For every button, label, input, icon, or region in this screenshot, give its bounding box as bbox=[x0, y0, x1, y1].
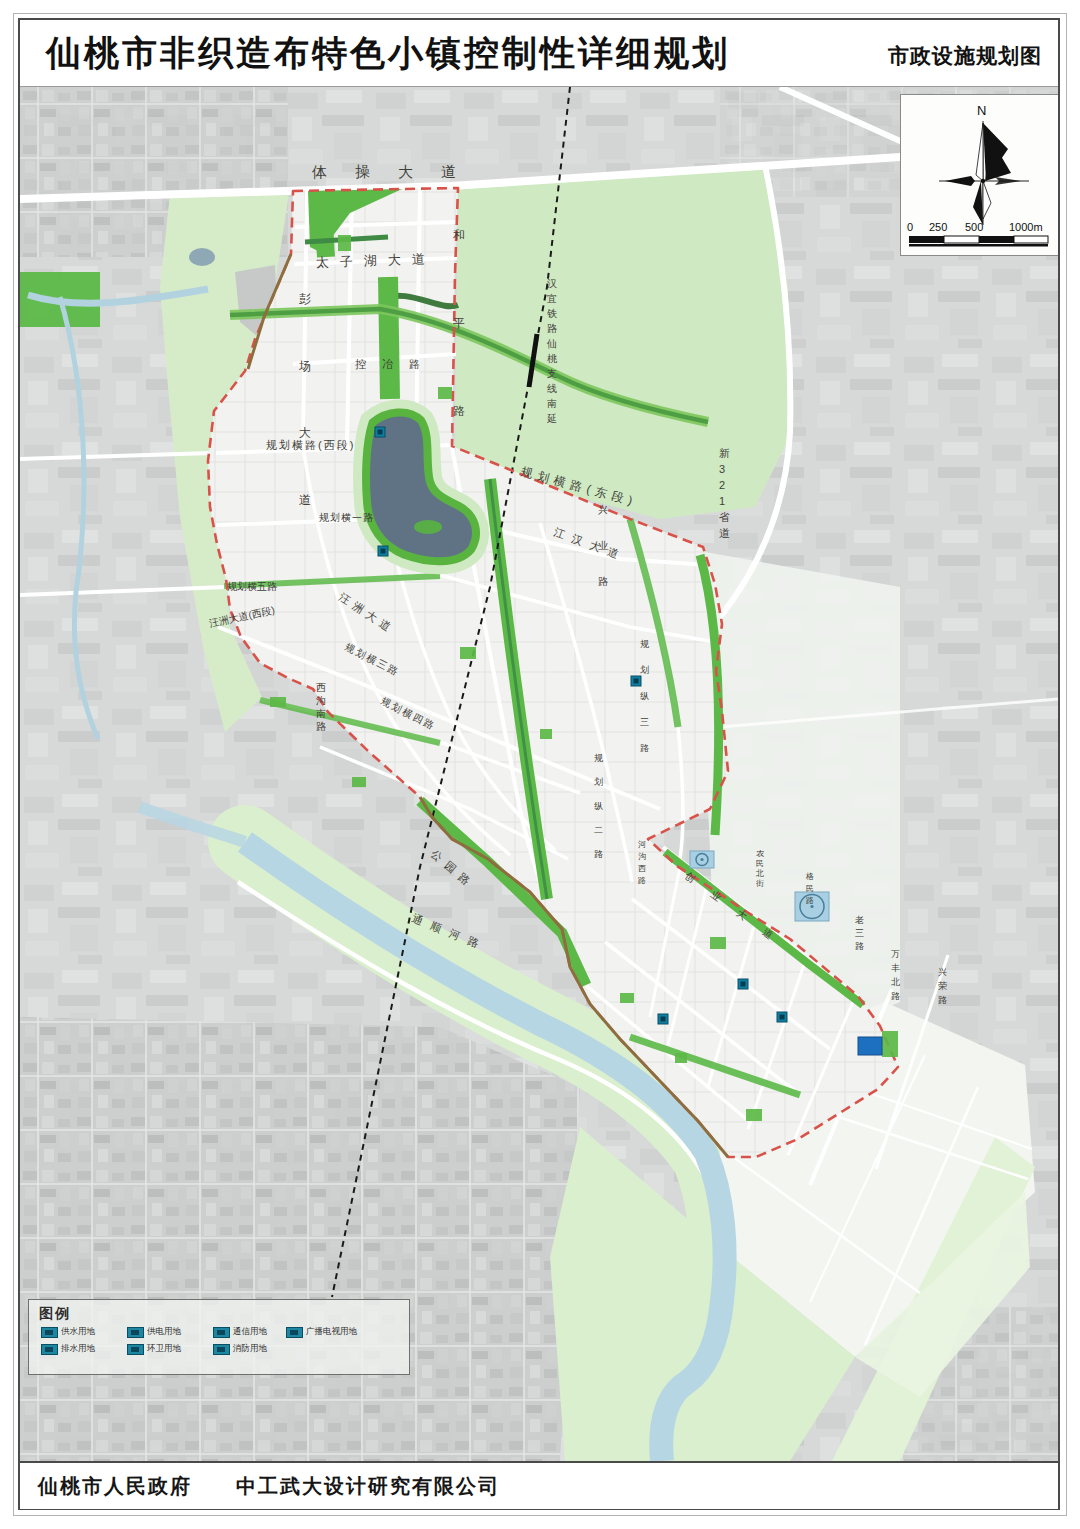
planning-map: 体操大道太子湖大道和平路彭场大道控冶路规划横路(西段)规划横一路规划横五路汪洲大… bbox=[20, 87, 1058, 1461]
page-subtitle: 市政设施规划图 bbox=[888, 42, 1042, 70]
legend-item-label: 排水用地 bbox=[61, 1344, 95, 1353]
scale-bar: 0 250 500 1000m bbox=[907, 221, 1048, 247]
legend-swatch bbox=[41, 1327, 58, 1338]
road-label: 规划横一路 bbox=[319, 512, 374, 523]
water-facility-block bbox=[858, 1037, 882, 1055]
road-label: 规划横五路 bbox=[227, 581, 277, 592]
scale-tick: 0 bbox=[907, 221, 913, 233]
legend-swatch bbox=[127, 1344, 144, 1355]
legend-item-label: 供水用地 bbox=[61, 1327, 95, 1336]
park-green-patch bbox=[620, 993, 634, 1003]
legend-item-label: 供电用地 bbox=[147, 1327, 181, 1336]
legend-item-label: 广播电视用地 bbox=[306, 1327, 357, 1336]
plan-sheet-frame: 仙桃市非织造布特色小镇控制性详细规划 市政设施规划图 bbox=[18, 18, 1060, 1510]
utility-facility-core bbox=[378, 430, 383, 435]
road-label: 格民路 bbox=[805, 872, 814, 905]
road-label: 老三路 bbox=[855, 915, 864, 951]
park-green-patch bbox=[710, 937, 726, 949]
park-green-patch bbox=[882, 1031, 898, 1057]
legend-item-label: 消防用地 bbox=[233, 1344, 267, 1353]
park-green-patch bbox=[746, 1109, 762, 1121]
legend-swatch bbox=[41, 1344, 58, 1355]
road-label: 体操大道 bbox=[311, 163, 484, 180]
page-title: 仙桃市非织造布特色小镇控制性详细规划 bbox=[46, 30, 730, 77]
legend-swatch bbox=[127, 1327, 144, 1338]
legend-swatch bbox=[213, 1344, 230, 1355]
road-label: 规划横路(西段) bbox=[266, 439, 355, 451]
map-area: 体操大道太子湖大道和平路彭场大道控冶路规划横路(西段)规划横一路规划横五路汪洲大… bbox=[20, 87, 1058, 1461]
legend-item-label: 通信用地 bbox=[233, 1327, 267, 1336]
legend: 图例 供水用地供电用地通信用地广播电视用地排水用地环卫用地消防用地 bbox=[28, 1299, 410, 1375]
scale-tick: 250 bbox=[929, 221, 947, 233]
legend-item-label: 环卫用地 bbox=[147, 1344, 181, 1353]
north-scale-box: N 0 250 500 1000m bbox=[900, 94, 1058, 256]
utility-facility-core bbox=[634, 679, 639, 684]
road-label: 农民北街 bbox=[755, 849, 765, 888]
north-label: N bbox=[977, 103, 986, 118]
scale-tick: 500 bbox=[965, 221, 983, 233]
park-green-patch bbox=[270, 697, 286, 707]
facility-circle-dot bbox=[700, 858, 703, 861]
utility-facility-core bbox=[381, 549, 386, 554]
legend-swatch bbox=[213, 1327, 230, 1338]
legend-title: 图例 bbox=[39, 1305, 71, 1323]
park-green-patch bbox=[460, 647, 476, 659]
road-label: 控冶路 bbox=[355, 358, 436, 370]
road-label: 兴荣路 bbox=[938, 967, 947, 1005]
utility-facility-core bbox=[741, 982, 746, 987]
sheet-footer: 仙桃市人民政府 中工武大设计研究有限公司 bbox=[20, 1461, 1058, 1509]
legend-swatch bbox=[286, 1327, 303, 1338]
park-green-patch bbox=[540, 729, 552, 739]
park-green-patch bbox=[438, 387, 452, 399]
sheet-header: 仙桃市非织造布特色小镇控制性详细规划 市政设施规划图 bbox=[20, 20, 1058, 87]
park-green-patch bbox=[675, 1053, 687, 1063]
scale-tick: 1000m bbox=[1009, 221, 1043, 233]
facility-circle-dot bbox=[810, 905, 813, 908]
compass-rose-icon bbox=[939, 121, 1029, 225]
park-green-patch bbox=[338, 235, 351, 251]
utility-facility-core bbox=[661, 1017, 666, 1022]
footer-text: 仙桃市人民政府 中工武大设计研究有限公司 bbox=[38, 1473, 500, 1500]
park-green-patch bbox=[352, 777, 366, 787]
compass-scale: N 0 250 500 1000m bbox=[901, 95, 1058, 253]
utility-facility-core bbox=[780, 1015, 785, 1020]
